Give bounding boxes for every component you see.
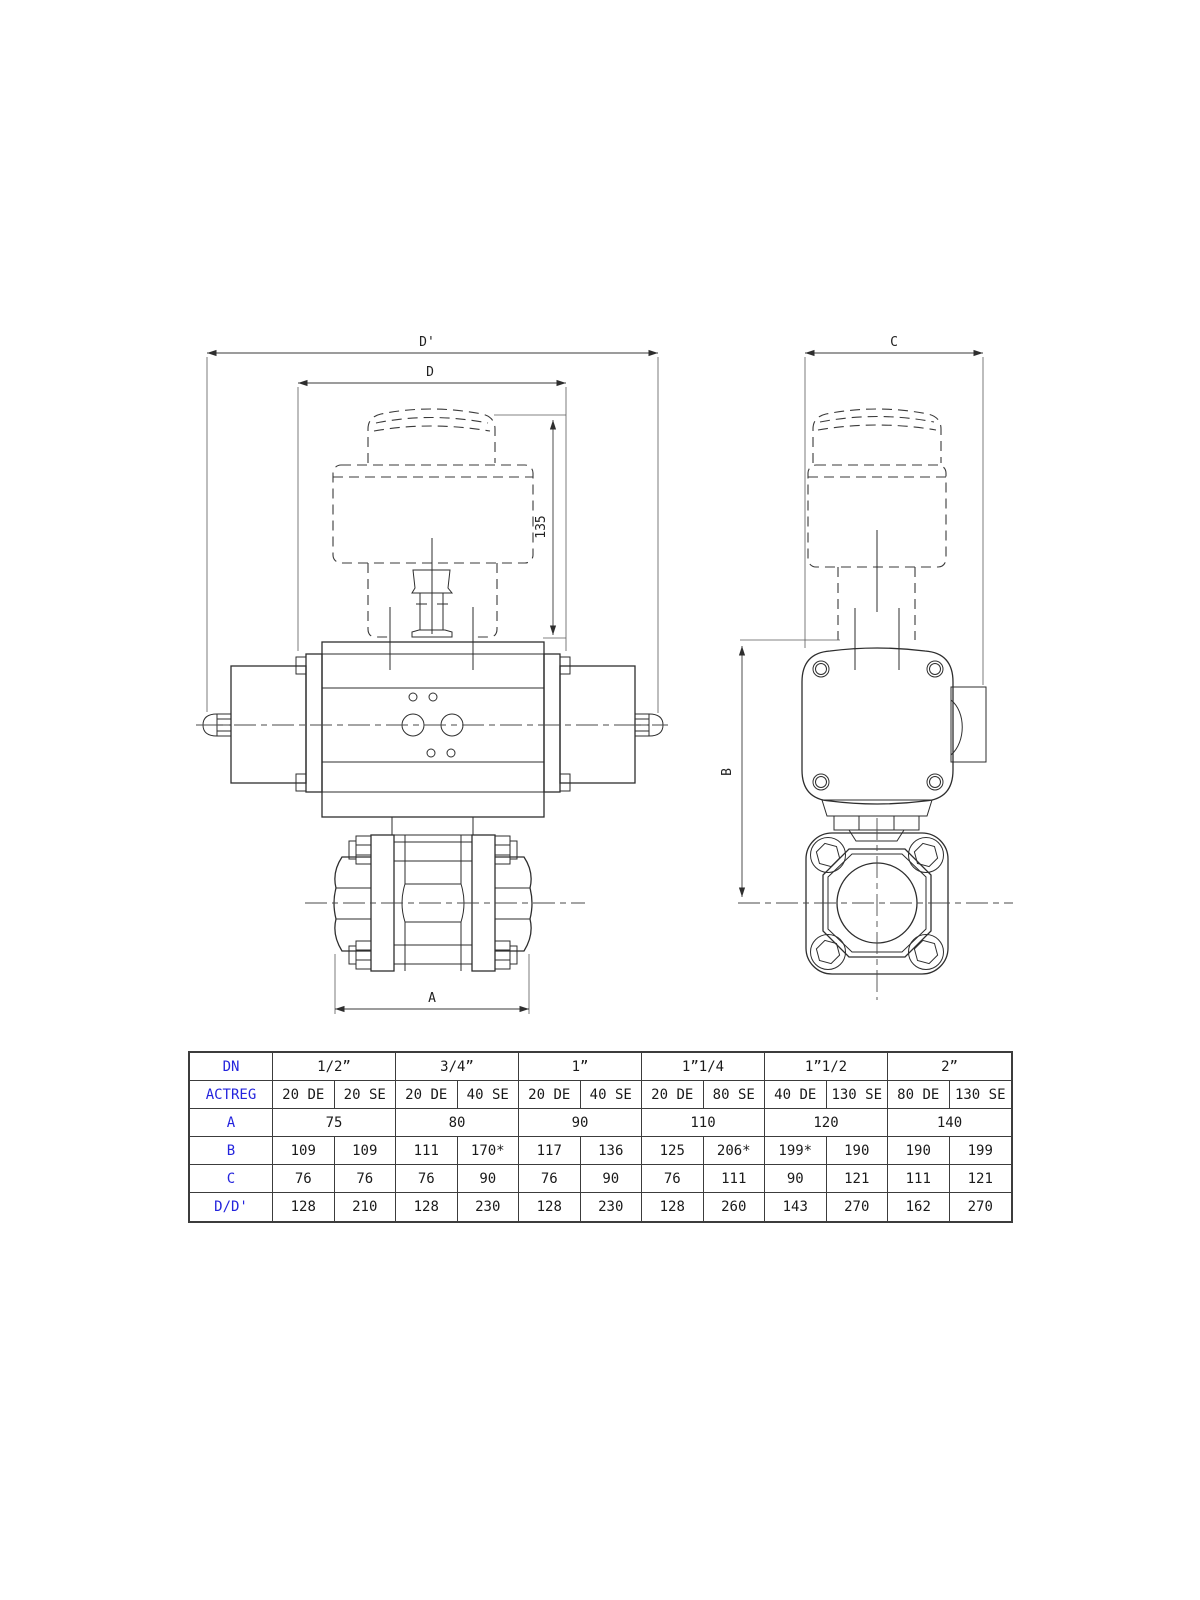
corner-hex-nut	[816, 843, 839, 866]
dd-value-cell: 230	[458, 1193, 520, 1221]
c-value-cell: 111	[888, 1165, 950, 1193]
b-value-cell: 109	[273, 1137, 335, 1165]
actreg-cell: 40 SE	[458, 1081, 520, 1109]
actreg-cell: 130 SE	[950, 1081, 1012, 1109]
c-value-cell: 76	[519, 1165, 581, 1193]
end-cap-right	[560, 666, 635, 783]
actuator-body-front	[322, 642, 544, 817]
valve-actuator-drawing: D' D 135	[0, 0, 1200, 1600]
b-value-cell: 109	[335, 1137, 397, 1165]
dim-label-d-prime: D'	[419, 335, 435, 350]
dim-label-135: 135	[534, 515, 549, 538]
b-value-cell: 199*	[765, 1137, 827, 1165]
dd-value-cell: 128	[396, 1193, 458, 1221]
dim-label-c: C	[890, 335, 898, 350]
control-unit-front	[333, 409, 533, 670]
tie-bar-top	[394, 842, 472, 861]
c-value-cell: 121	[950, 1165, 1012, 1193]
dd-value-cell: 143	[765, 1193, 827, 1221]
c-value-cell: 76	[335, 1165, 397, 1193]
valve-front	[305, 835, 585, 971]
tie-bar-bottom	[394, 945, 472, 964]
end-cap-left	[231, 666, 306, 783]
dd-value-cell: 260	[704, 1193, 766, 1221]
actreg-cell: 20 DE	[642, 1081, 704, 1109]
actreg-cell: 40 SE	[581, 1081, 643, 1109]
dn-size-cell: 1”	[519, 1053, 642, 1081]
c-value-cell: 121	[827, 1165, 889, 1193]
flange-lobe	[909, 935, 944, 970]
actreg-cell: 20 SE	[335, 1081, 397, 1109]
dimension-table: DN 1/2” 3/4” 1” 1”1/4 1”1/2 2” ACTREG 20…	[188, 1051, 1013, 1223]
b-value-cell: 199	[950, 1137, 1012, 1165]
dimension-c: C	[805, 335, 983, 685]
b-value-cell: 206*	[704, 1137, 766, 1165]
c-value-cell: 76	[273, 1165, 335, 1193]
c-value-cell: 90	[458, 1165, 520, 1193]
c-value-cell: 90	[765, 1165, 827, 1193]
actreg-cell: 130 SE	[827, 1081, 889, 1109]
actuator-front	[196, 642, 668, 835]
dimension-d-prime: D'	[207, 335, 658, 713]
dn-size-cell: 2”	[888, 1053, 1011, 1081]
actuator-side	[802, 648, 986, 841]
a-value-cell: 90	[519, 1109, 642, 1137]
actreg-cell: 20 DE	[519, 1081, 581, 1109]
dome-side	[813, 409, 941, 463]
dim-label-b: B	[720, 768, 735, 776]
control-unit-side	[808, 409, 946, 670]
b-value-cell: 117	[519, 1137, 581, 1165]
b-value-cell: 190	[827, 1137, 889, 1165]
dimension-135: 135	[494, 415, 566, 638]
dimension-b: B	[720, 640, 840, 897]
actreg-cell: 40 DE	[765, 1081, 827, 1109]
dd-value-cell: 270	[827, 1193, 889, 1221]
b-value-cell: 111	[396, 1137, 458, 1165]
c-value-cell: 90	[581, 1165, 643, 1193]
technical-drawing-page: D' D 135	[0, 0, 1200, 1600]
a-value-cell: 80	[396, 1109, 519, 1137]
actreg-cell: 80 SE	[704, 1081, 766, 1109]
actreg-cell: 80 DE	[888, 1081, 950, 1109]
dim-label-a: A	[428, 991, 436, 1006]
row-header-c: C	[190, 1165, 273, 1193]
flange-lobe	[811, 838, 846, 873]
front-view: D' D 135	[196, 335, 668, 1014]
row-header-dn: DN	[190, 1053, 273, 1081]
solenoid-front	[368, 563, 392, 637]
dd-value-cell: 162	[888, 1193, 950, 1221]
b-value-cell: 190	[888, 1137, 950, 1165]
a-value-cell: 140	[888, 1109, 1011, 1137]
dd-value-cell: 230	[581, 1193, 643, 1221]
row-header-actreg: ACTREG	[190, 1081, 273, 1109]
hex-cap-right	[495, 857, 532, 951]
flange-lobe	[909, 838, 944, 873]
corner-hex-nut	[914, 843, 937, 866]
a-value-cell: 120	[765, 1109, 888, 1137]
dd-value-cell: 128	[273, 1193, 335, 1221]
b-value-cell: 170*	[458, 1137, 520, 1165]
dn-size-cell: 1”1/4	[642, 1053, 765, 1081]
dd-value-cell: 128	[519, 1193, 581, 1221]
b-value-cell: 125	[642, 1137, 704, 1165]
dd-value-cell: 210	[335, 1193, 397, 1221]
flange-lobe	[811, 935, 846, 970]
dn-size-cell: 3/4”	[396, 1053, 519, 1081]
row-header-a: A	[190, 1109, 273, 1137]
bolt-nuts	[349, 836, 517, 969]
a-value-cell: 110	[642, 1109, 765, 1137]
dimension-a: A	[335, 954, 529, 1014]
b-value-cell: 136	[581, 1137, 643, 1165]
side-view: C B	[720, 335, 1013, 1000]
air-port-block	[951, 687, 986, 762]
c-value-cell: 76	[396, 1165, 458, 1193]
actreg-cell: 20 DE	[396, 1081, 458, 1109]
switch-box-front	[333, 465, 533, 563]
a-value-cell: 75	[273, 1109, 396, 1137]
c-value-cell: 76	[642, 1165, 704, 1193]
dim-label-d: D	[426, 365, 434, 380]
hex-cap-left	[334, 857, 371, 951]
row-header-dd: D/D'	[190, 1193, 273, 1221]
actreg-cell: 20 DE	[273, 1081, 335, 1109]
dd-value-cell: 128	[642, 1193, 704, 1221]
dn-size-cell: 1”1/2	[765, 1053, 888, 1081]
c-value-cell: 111	[704, 1165, 766, 1193]
row-header-b: B	[190, 1137, 273, 1165]
dd-value-cell: 270	[950, 1193, 1012, 1221]
valve-side	[738, 818, 1013, 1000]
dn-size-cell: 1/2”	[273, 1053, 396, 1081]
